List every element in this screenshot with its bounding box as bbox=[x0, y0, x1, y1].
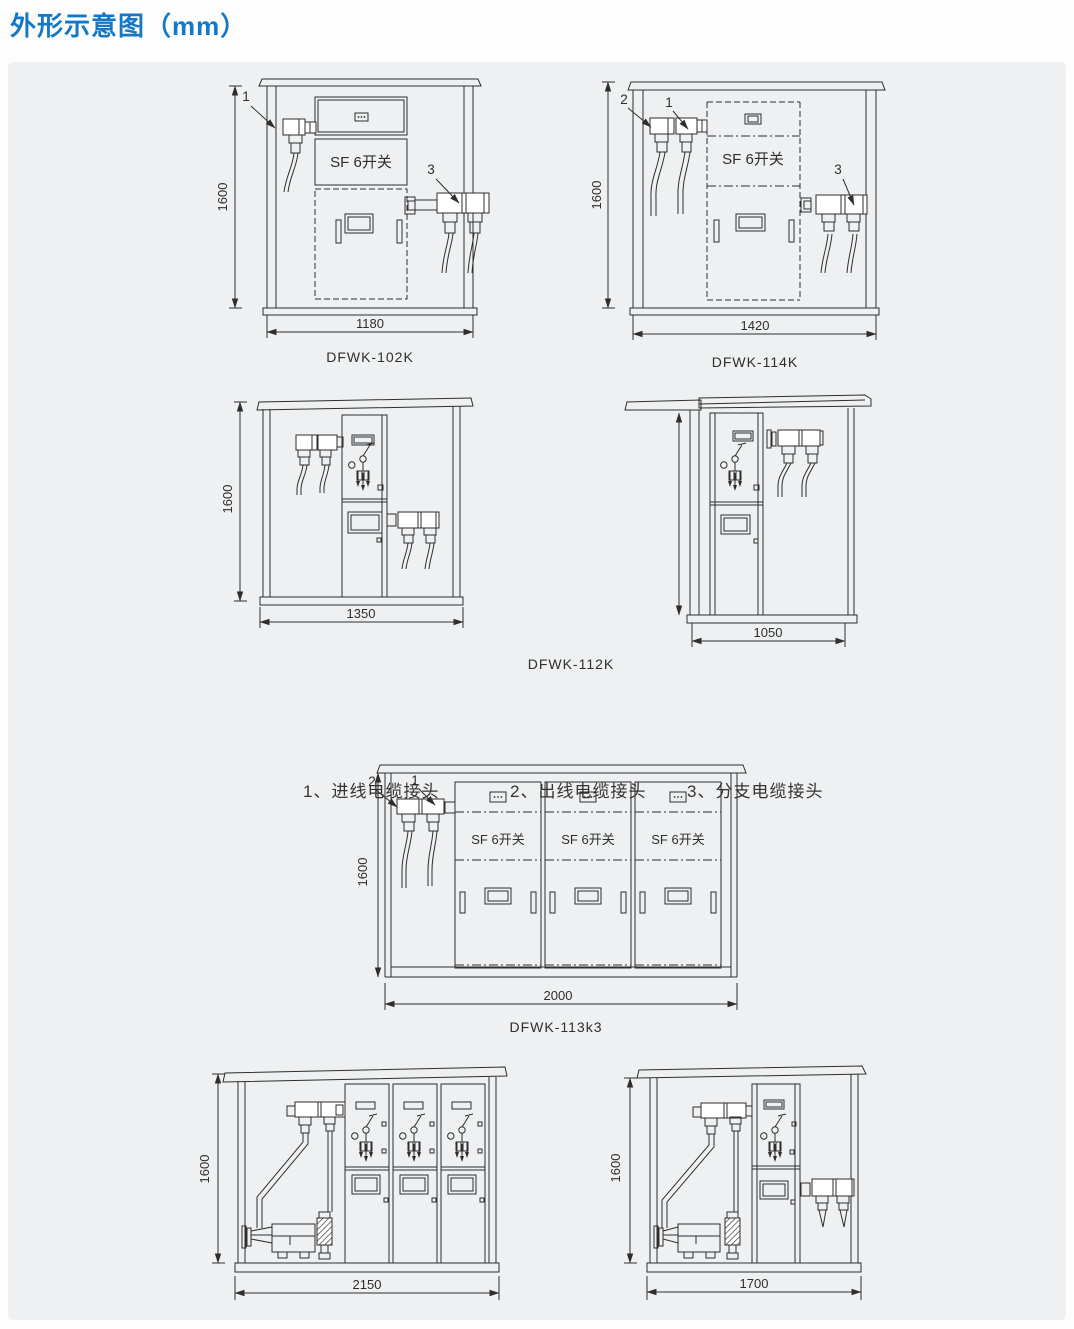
door-handle bbox=[485, 888, 511, 904]
sf6-switch-label: SF 6开关 bbox=[651, 832, 704, 847]
svg-text:2: 2 bbox=[368, 774, 376, 789]
switch-unit bbox=[342, 415, 387, 597]
door-slot bbox=[711, 892, 716, 913]
cable-pipe-bent bbox=[662, 1118, 717, 1228]
svg-text:1600: 1600 bbox=[215, 183, 230, 212]
cabinet-outline bbox=[260, 406, 463, 605]
dimension-width: 1350 bbox=[260, 606, 463, 628]
callout-1: 1 bbox=[242, 89, 275, 128]
dimension-width: 2000 bbox=[385, 983, 737, 1010]
dimension-width: 2150 bbox=[235, 1276, 499, 1300]
diagram-side-1700: 1600 1700 bbox=[590, 1052, 980, 1327]
svg-text:1600: 1600 bbox=[608, 1154, 623, 1183]
model-label: DFWK-102K bbox=[326, 349, 414, 365]
diagram-dfwk-112k-side: 1050 bbox=[595, 383, 905, 673]
door-slot bbox=[640, 892, 645, 913]
diagram-dfwk-113k3: SF 6开关 SF 6开关 bbox=[350, 760, 754, 1045]
transformer-unit bbox=[242, 1224, 315, 1258]
switch-unit: SF 6开关 bbox=[315, 97, 407, 299]
cable-connectors bbox=[287, 1102, 345, 1117]
door bbox=[315, 189, 407, 299]
switch-panel-2 bbox=[393, 1084, 437, 1263]
door-slot bbox=[789, 220, 794, 242]
svg-text:3: 3 bbox=[427, 162, 435, 177]
roof bbox=[377, 765, 746, 773]
cable-pipe-straight bbox=[725, 1117, 741, 1259]
sf6-switch-label: SF 6开关 bbox=[561, 832, 614, 847]
dimension-height: 1600 bbox=[197, 1074, 225, 1263]
switch-compartment-1: SF 6开关 bbox=[455, 782, 541, 968]
incoming-cable-connector bbox=[676, 118, 707, 214]
drawings-panel: SF 6开关 1 bbox=[8, 62, 1066, 1320]
callout-2: 2 bbox=[368, 774, 397, 807]
transformer-unit bbox=[654, 1224, 720, 1258]
svg-text:3: 3 bbox=[834, 162, 842, 177]
display-panel bbox=[764, 1100, 784, 1109]
svg-text:2000: 2000 bbox=[544, 988, 573, 1003]
door-slot bbox=[531, 892, 536, 913]
switch-unit bbox=[710, 413, 763, 615]
roof bbox=[257, 398, 473, 410]
switch-panel bbox=[752, 1084, 800, 1263]
switch-symbol bbox=[349, 443, 374, 491]
model-label: DFWK-113k3 bbox=[510, 1019, 603, 1035]
door-slot bbox=[550, 892, 555, 913]
diagram-dfwk-102k: SF 6开关 1 bbox=[215, 70, 505, 372]
cable-pipe-bent bbox=[257, 1117, 311, 1228]
door-slot bbox=[397, 220, 402, 243]
switch-symbol bbox=[761, 1114, 786, 1162]
switch-symbol bbox=[352, 1114, 377, 1162]
svg-text:1180: 1180 bbox=[356, 316, 384, 331]
svg-text:2: 2 bbox=[620, 92, 628, 107]
cable-termination-cylinder bbox=[725, 1218, 740, 1245]
door-handle bbox=[665, 888, 691, 904]
roof bbox=[223, 1067, 507, 1082]
callout-2: 2 bbox=[620, 92, 651, 127]
dimension-height: 1600 bbox=[355, 773, 378, 977]
dimension-height: 1600 bbox=[220, 402, 247, 601]
outgoing-cable-connector bbox=[767, 430, 823, 497]
dimension-height: 1600 bbox=[589, 82, 615, 308]
svg-text:1420: 1420 bbox=[741, 318, 770, 333]
switch-symbol bbox=[721, 443, 746, 491]
dimension-height: 1600 bbox=[215, 86, 242, 308]
door-handle bbox=[575, 888, 601, 904]
svg-text:1350: 1350 bbox=[347, 606, 376, 621]
door-slot bbox=[336, 220, 341, 243]
switch-symbol bbox=[400, 1114, 425, 1162]
dimension-width: 1420 bbox=[633, 315, 876, 340]
roof bbox=[637, 1066, 866, 1078]
diagram-dfwk-112k-front: 1600 1350 bbox=[220, 385, 510, 677]
cable-connectors bbox=[693, 1103, 752, 1118]
model-label-dfwk112k: DFWK-112K bbox=[471, 656, 671, 672]
switch-unit: SF 6开关 bbox=[707, 102, 800, 300]
switch-panel-1 bbox=[345, 1084, 389, 1263]
diagram-side-2150: 1600 2150 bbox=[172, 1052, 567, 1327]
incoming-cable-connector bbox=[283, 119, 316, 192]
sf6-switch-label: SF 6开关 bbox=[330, 154, 392, 171]
dimension-width: 1180 bbox=[267, 315, 473, 338]
switch-panel-3 bbox=[441, 1084, 485, 1263]
branch-cable-connector bbox=[801, 195, 867, 273]
door-slot bbox=[714, 220, 719, 242]
dimension-width: 1700 bbox=[647, 1276, 861, 1300]
dimension-height: 1600 bbox=[608, 1078, 637, 1263]
switch-symbol bbox=[448, 1114, 473, 1162]
svg-text:1: 1 bbox=[411, 773, 419, 788]
switch-compartment-2: SF 6开关 bbox=[545, 782, 631, 968]
switch-compartment-3: SF 6开关 bbox=[635, 782, 721, 968]
svg-text:1600: 1600 bbox=[355, 858, 370, 887]
branch-cable-connector bbox=[405, 193, 489, 273]
svg-text:1600: 1600 bbox=[220, 485, 235, 514]
roof bbox=[259, 79, 481, 86]
cable-connectors bbox=[397, 799, 455, 888]
cabinet-outline bbox=[647, 1074, 861, 1272]
svg-text:1700: 1700 bbox=[740, 1276, 769, 1291]
branch-cable-connector bbox=[801, 1179, 854, 1227]
model-label: DFWK-114K bbox=[712, 354, 799, 370]
page-title: 外形示意图（mm） bbox=[10, 6, 247, 43]
roof bbox=[628, 82, 885, 90]
svg-text:1600: 1600 bbox=[197, 1155, 212, 1184]
outgoing-cable-connector bbox=[650, 118, 674, 216]
svg-text:1: 1 bbox=[665, 95, 673, 110]
svg-text:1600: 1600 bbox=[589, 181, 604, 210]
cable-pipe-straight bbox=[317, 1117, 335, 1259]
incoming-cable-connector bbox=[296, 435, 343, 495]
dimension-width: 1050 bbox=[692, 623, 845, 647]
sf6-switch-label: SF 6开关 bbox=[471, 832, 524, 847]
roof bbox=[625, 395, 871, 410]
cable-termination-cylinder bbox=[317, 1218, 332, 1245]
door-slot bbox=[621, 892, 626, 913]
door-slot bbox=[460, 892, 465, 913]
svg-text:2150: 2150 bbox=[353, 1277, 382, 1292]
diagram-dfwk-114k: SF 6开关 2 bbox=[595, 68, 910, 374]
svg-text:1: 1 bbox=[242, 89, 250, 104]
sf6-switch-label: SF 6开关 bbox=[722, 151, 784, 168]
svg-text:1050: 1050 bbox=[754, 625, 783, 640]
branch-cable-connector bbox=[387, 512, 439, 569]
